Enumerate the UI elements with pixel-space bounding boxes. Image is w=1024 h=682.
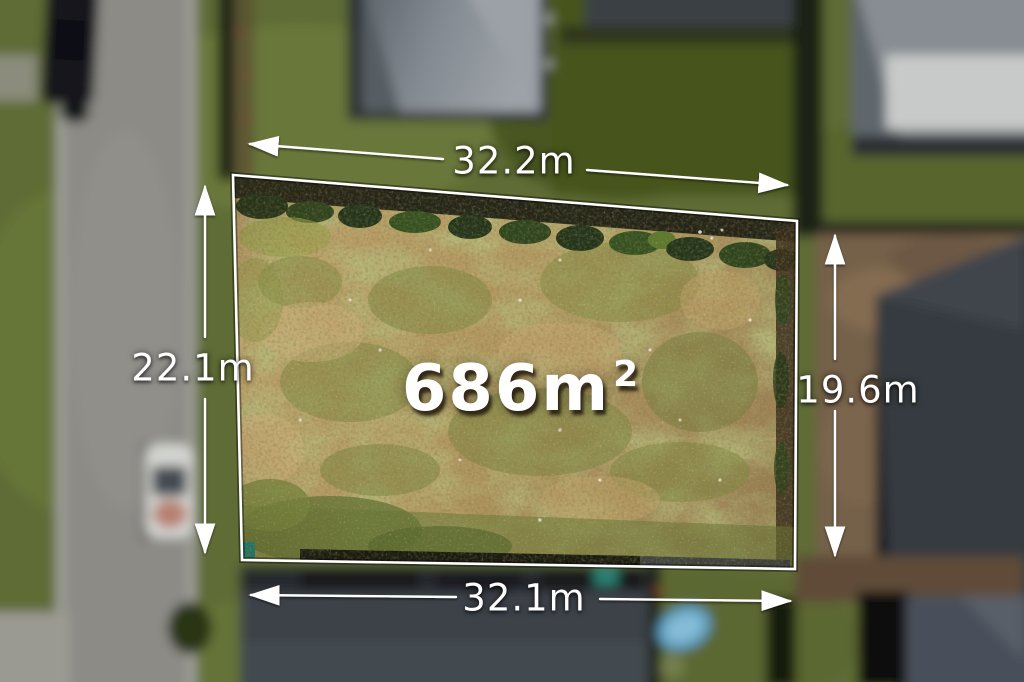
house-roof-top-right: [852, 0, 1024, 156]
roof-shadow-above: [560, 26, 800, 44]
dimension-label-top: 32.2m: [452, 143, 575, 180]
dimension-label-right: 19.6m: [796, 372, 919, 409]
bush-bottom-left: [168, 602, 212, 654]
fence-left-of-lot: [218, 0, 234, 180]
hedge-strip-bottom: [648, 560, 661, 682]
area-value: 686m: [402, 352, 610, 426]
road-edge-right: [188, 0, 196, 682]
driveway-bottom-left: [0, 612, 70, 682]
red-object: [655, 588, 662, 595]
area-label: 686m2: [402, 357, 640, 421]
roof-strip-above: [585, 0, 800, 27]
white-car: [140, 442, 193, 542]
house-roof-top-center: [348, 0, 555, 120]
dimension-label-bottom: 32.1m: [462, 580, 585, 617]
fence-bottom-right-1: [766, 598, 796, 682]
driveway-top-left: [0, 55, 37, 101]
area-superscript: 2: [613, 354, 640, 395]
yard-ring: [659, 653, 685, 679]
house-roof-bottom: [240, 566, 650, 682]
fence-bottom-right-2: [858, 592, 910, 682]
house-roof-bottom-right: [906, 596, 1024, 682]
fence-right-of-backyard: [793, 0, 823, 237]
dirt-strip-left: [234, 0, 254, 180]
dimension-label-left: 22.1m: [131, 350, 254, 387]
aerial-photo: 32.2m 22.1m 19.6m 32.1m 686m2: [0, 0, 1024, 682]
